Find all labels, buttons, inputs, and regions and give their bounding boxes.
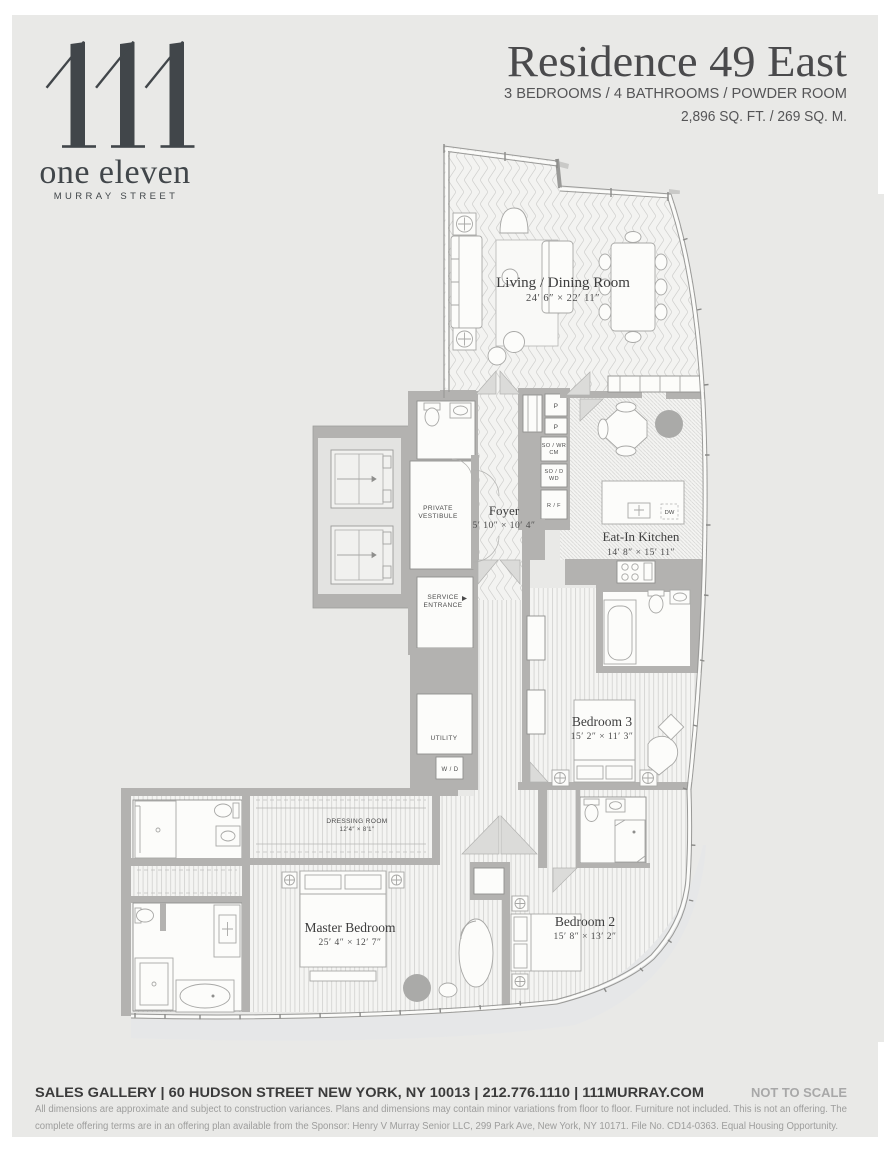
svg-text:15′ 2″ × 11′ 3″: 15′ 2″ × 11′ 3″ — [571, 732, 634, 742]
svg-text:14′ 8″ × 15′ 11″: 14′ 8″ × 15′ 11″ — [607, 548, 675, 558]
svg-text:VESTIBULE: VESTIBULE — [418, 513, 458, 520]
svg-text:W / D: W / D — [442, 767, 459, 773]
svg-text:ENTRANCE: ENTRANCE — [424, 602, 463, 609]
svg-text:CM: CM — [549, 450, 558, 456]
svg-text:Bedroom 3: Bedroom 3 — [572, 714, 633, 729]
svg-text:NOT TO SCALE: NOT TO SCALE — [751, 1085, 847, 1100]
svg-text:All dimensions are approximate: All dimensions are approximate and subje… — [35, 1104, 847, 1115]
svg-text:15′ 8″ × 13′ 2″: 15′ 8″ × 13′ 2″ — [554, 932, 617, 942]
svg-text:SALES GALLERY | 60 HUDSON ST: SALES GALLERY | 60 HUDSON STREET NEW YOR… — [35, 1085, 704, 1100]
svg-text:24′ 6″ × 22′ 11″: 24′ 6″ × 22′ 11″ — [526, 293, 600, 304]
svg-text:one eleven: one eleven — [39, 154, 190, 191]
svg-text:DRESSING ROOM: DRESSING ROOM — [326, 818, 387, 825]
svg-text:25′ 4″ × 12′ 7″: 25′ 4″ × 12′ 7″ — [319, 938, 382, 948]
svg-text:P: P — [554, 424, 559, 431]
svg-text:Master Bedroom: Master Bedroom — [304, 920, 396, 935]
svg-text:complete offering terms are in: complete offering terms are in an offeri… — [35, 1121, 838, 1132]
svg-text:3 BEDROOMS / 4 BATHROOMS /: 3 BEDROOMS / 4 BATHROOMS / POWDER ROOM — [504, 86, 847, 102]
svg-text:PRIVATE: PRIVATE — [423, 505, 453, 512]
svg-text:DW: DW — [665, 510, 675, 516]
svg-text:5′ 10″ × 10′ 4″: 5′ 10″ × 10′ 4″ — [473, 521, 536, 531]
svg-text:UTILITY: UTILITY — [431, 735, 458, 742]
svg-text:Eat-In Kitchen: Eat-In Kitchen — [603, 529, 680, 544]
svg-text:SERVICE: SERVICE — [427, 594, 458, 601]
svg-text:12′4″ × 8′1″: 12′4″ × 8′1″ — [340, 827, 375, 833]
svg-text:SO / WR: SO / WR — [542, 443, 567, 449]
svg-text:Foyer: Foyer — [489, 503, 520, 518]
svg-text:Residence 49 East: Residence 49 East — [507, 37, 847, 86]
svg-text:SO / D: SO / D — [545, 469, 564, 475]
svg-text:WD: WD — [549, 476, 559, 482]
svg-text:R / F: R / F — [547, 503, 561, 509]
svg-text:Living / Dining Room: Living / Dining Room — [496, 275, 630, 291]
svg-text:P: P — [554, 403, 559, 410]
svg-text:MURRAY STREET: MURRAY STREET — [54, 191, 179, 202]
svg-text:Bedroom 2: Bedroom 2 — [555, 914, 615, 929]
svg-text:2,896 SQ. FT. / 269 SQ. M.: 2,896 SQ. FT. / 269 SQ. M. — [681, 109, 847, 125]
